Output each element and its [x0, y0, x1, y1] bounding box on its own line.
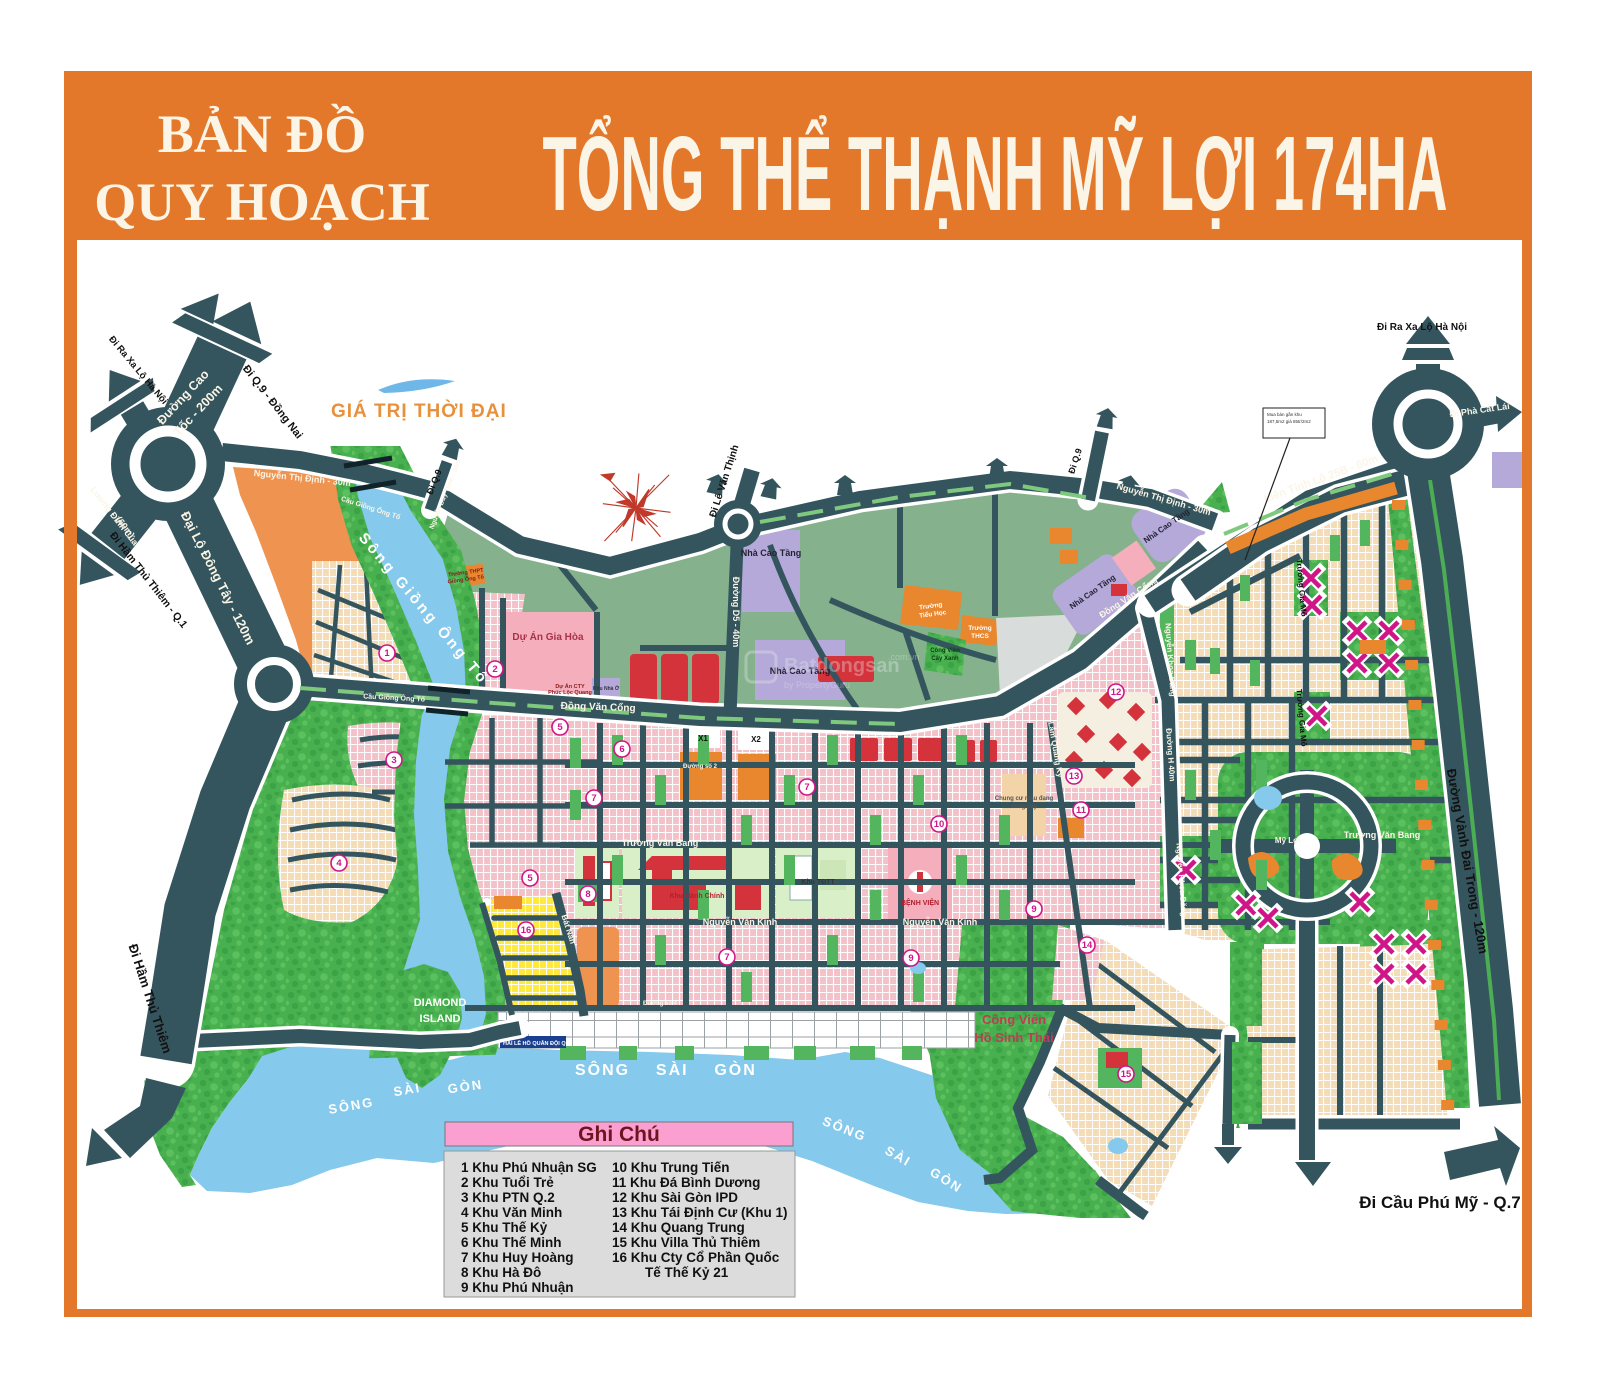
svg-text:Dự Án Gia Hòa: Dự Án Gia Hòa [512, 630, 584, 643]
svg-text:7: 7 [804, 782, 809, 793]
svg-text:Nguyễn Văn Kỉnh: Nguyễn Văn Kỉnh [903, 917, 978, 927]
svg-text:4: 4 [336, 858, 342, 869]
svg-text:5: 5 [527, 873, 533, 884]
svg-text:Nhà Cao Tầng: Nhà Cao Tầng [741, 548, 802, 558]
svg-text:đang xây: đang xây [1011, 804, 1038, 810]
svg-text:9: 9 [1031, 904, 1036, 915]
svg-text:Đường số 4: Đường số 4 [643, 1000, 678, 1007]
svg-text:8: 8 [585, 889, 590, 900]
svg-text:Chung cư mẫu đang: Chung cư mẫu đang [995, 795, 1054, 802]
svg-text:Đường D5 - 40m: Đường D5 - 40m [731, 577, 741, 647]
svg-text:9 Khu Phú Nhuận: 9 Khu Phú Nhuận [461, 1280, 574, 1295]
svg-text:THCS: THCS [971, 633, 989, 640]
svg-text:TỔNG THỂ THẠNH MỸ LỢI 174HA: TỔNG THỂ THẠNH MỸ LỢI 174HA [543, 115, 1448, 233]
svg-text:X2: X2 [751, 735, 761, 744]
svg-text:Cây Xanh: Cây Xanh [931, 656, 959, 662]
svg-text:Trường Văn Bang: Trường Văn Bang [1344, 830, 1420, 840]
svg-text:SÔNG SÀI GÒN: SÔNG SÀI GÒN [575, 1060, 757, 1079]
svg-text:Hồ Sinh Thái: Hồ Sinh Thái [974, 1030, 1053, 1045]
svg-text:2: 2 [492, 664, 497, 675]
svg-text:HẢI LÊ HỒ QUÂN ĐỘI Q.2: HẢI LÊ HỒ QUÂN ĐỘI Q.2 [503, 1039, 570, 1047]
svg-text:6: 6 [619, 744, 624, 755]
svg-text:5: 5 [557, 722, 563, 733]
svg-text:16: 16 [521, 925, 532, 936]
svg-text:Ghi Chú: Ghi Chú [578, 1123, 660, 1146]
svg-text:1 Khu Phú Nhuận SG: 1 Khu Phú Nhuận SG [461, 1160, 597, 1175]
svg-text:8 Khu Hà Đô: 8 Khu Hà Đô [461, 1265, 541, 1280]
svg-text:6 Khu Thế Minh: 6 Khu Thế Minh [461, 1235, 562, 1250]
svg-text:7: 7 [724, 952, 729, 963]
svg-text:14: 14 [1082, 940, 1093, 951]
svg-text:4 Khu Văn Minh: 4 Khu Văn Minh [461, 1205, 562, 1220]
svg-text:X1: X1 [698, 734, 708, 743]
svg-text:Khu Hành Chính: Khu Hành Chính [670, 893, 725, 900]
svg-text:10 Khu Trung Tiến: 10 Khu Trung Tiến [612, 1160, 730, 1175]
svg-text:Công Viên: Công Viên [930, 648, 960, 654]
svg-text:187,5m2 giá 85tr/2m2: 187,5m2 giá 85tr/2m2 [1267, 419, 1311, 424]
svg-text:7: 7 [591, 793, 596, 804]
svg-text:by PropertyGuru: by PropertyGuru [784, 680, 850, 690]
svg-text:QUY HOẠCH: QUY HOẠCH [94, 172, 430, 232]
svg-text:13 Khu Tái Định Cư (Khu 1): 13 Khu Tái Định Cư (Khu 1) [612, 1205, 788, 1220]
svg-text:12 Khu Sài Gòn IPD: 12 Khu Sài Gòn IPD [612, 1190, 738, 1205]
svg-text:Công Viên: Công Viên [982, 1012, 1046, 1027]
svg-text:GIÁ TRỊ THỜI ĐẠI: GIÁ TRỊ THỜI ĐẠI [331, 400, 507, 422]
svg-text:Đường số 2: Đường số 2 [683, 763, 718, 770]
svg-text:Đi Cầu Phú Mỹ - Q.7: Đi Cầu Phú Mỹ - Q.7 [1359, 1193, 1521, 1212]
svg-text:Phúc Lộc Quang: Phúc Lộc Quang [548, 690, 592, 696]
svg-text:BỆNH VIỆN: BỆNH VIỆN [901, 898, 939, 907]
svg-text:5 Khu Thế Kỷ: 5 Khu Thế Kỷ [461, 1220, 548, 1235]
svg-text:10: 10 [934, 819, 945, 830]
svg-text:15 Khu Villa Thủ Thiêm: 15 Khu Villa Thủ Thiêm [612, 1235, 760, 1250]
svg-text:11: 11 [1076, 805, 1087, 816]
svg-text:Nguyễn Văn Kỉnh: Nguyễn Văn Kỉnh [703, 917, 778, 927]
svg-text:2 Khu Tuổi Trẻ: 2 Khu Tuổi Trẻ [461, 1175, 554, 1190]
svg-text:.com.vn: .com.vn [888, 652, 920, 662]
svg-text:Tế Thế Kỷ 21: Tế Thế Kỷ 21 [645, 1265, 729, 1280]
svg-text:7 Khu Huy Hoàng: 7 Khu Huy Hoàng [461, 1250, 574, 1265]
svg-text:Mỹ Lợi: Mỹ Lợi [1275, 836, 1301, 845]
svg-text:9: 9 [908, 953, 913, 964]
svg-text:BẢN ĐỒ: BẢN ĐỒ [158, 103, 367, 164]
svg-text:DIAMOND: DIAMOND [414, 997, 467, 1009]
svg-text:12: 12 [1111, 687, 1122, 698]
svg-text:13: 13 [1069, 771, 1080, 782]
svg-text:16 Khu Cty Cổ Phần Quốc: 16 Khu Cty Cổ Phần Quốc [612, 1250, 780, 1265]
svg-text:11 Khu Đá Bình Dương: 11 Khu Đá Bình Dương [612, 1175, 760, 1190]
svg-text:Trường: Trường [968, 625, 991, 632]
svg-text:3: 3 [391, 755, 396, 766]
svg-text:Mua bán gần khu: Mua bán gần khu [1267, 412, 1302, 417]
svg-text:Đi Ra Xa Lộ Hà Nội: Đi Ra Xa Lộ Hà Nội [1377, 322, 1467, 333]
svg-text:Khu TĐTT: Khu TĐTT [801, 879, 835, 886]
svg-text:Khu Nhà Ở: Khu Nhà Ở [593, 685, 620, 692]
svg-text:ISLAND: ISLAND [420, 1013, 461, 1025]
svg-text:Dự Án CTY: Dự Án CTY [555, 683, 585, 690]
svg-text:14 Khu Quang Trung: 14 Khu Quang Trung [612, 1220, 745, 1235]
svg-text:1: 1 [384, 648, 390, 659]
svg-text:Trường Văn Bang: Trường Văn Bang [622, 838, 698, 848]
svg-text:3 Khu PTN Q.2: 3 Khu PTN Q.2 [461, 1190, 555, 1205]
svg-text:Batdongsan: Batdongsan [784, 655, 900, 677]
svg-text:15: 15 [1121, 1069, 1132, 1080]
